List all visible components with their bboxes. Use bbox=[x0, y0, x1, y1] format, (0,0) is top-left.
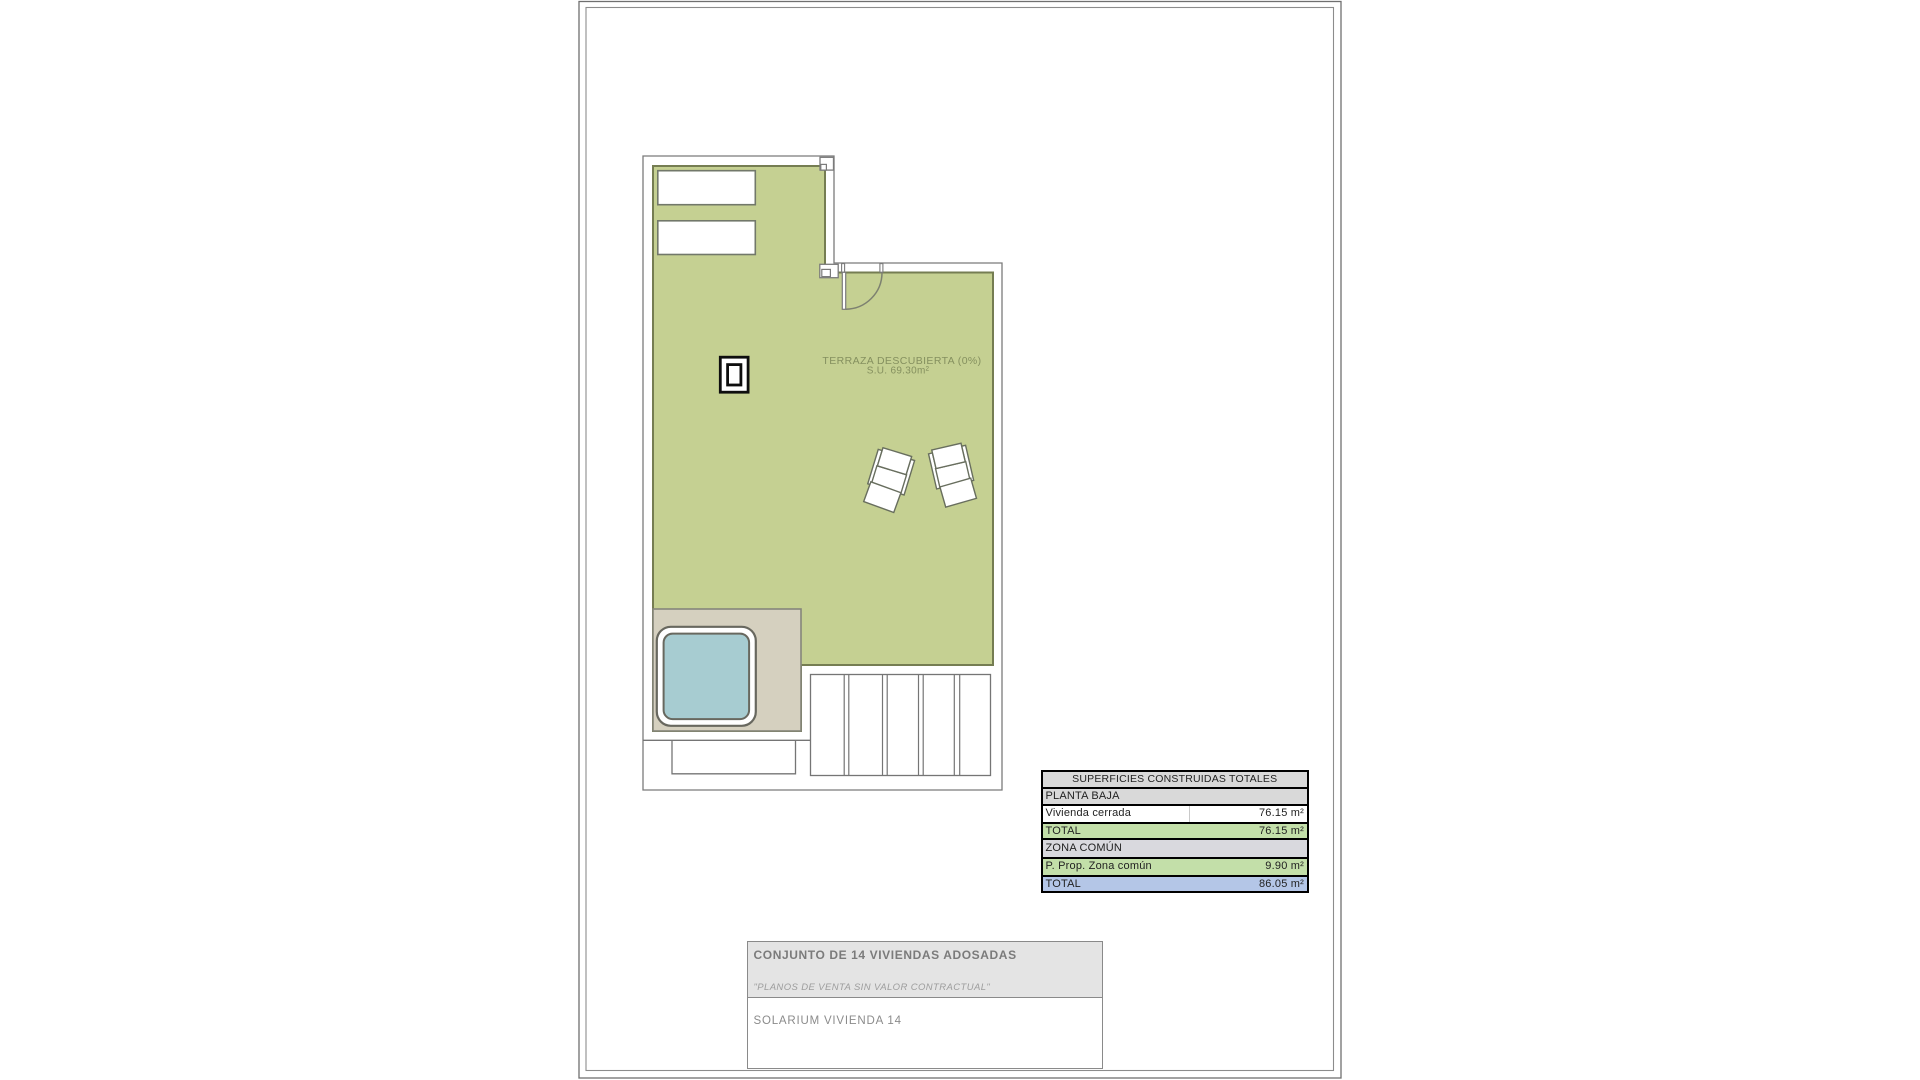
svg-text:S.U. 69.30m²: S.U. 69.30m² bbox=[867, 366, 930, 377]
